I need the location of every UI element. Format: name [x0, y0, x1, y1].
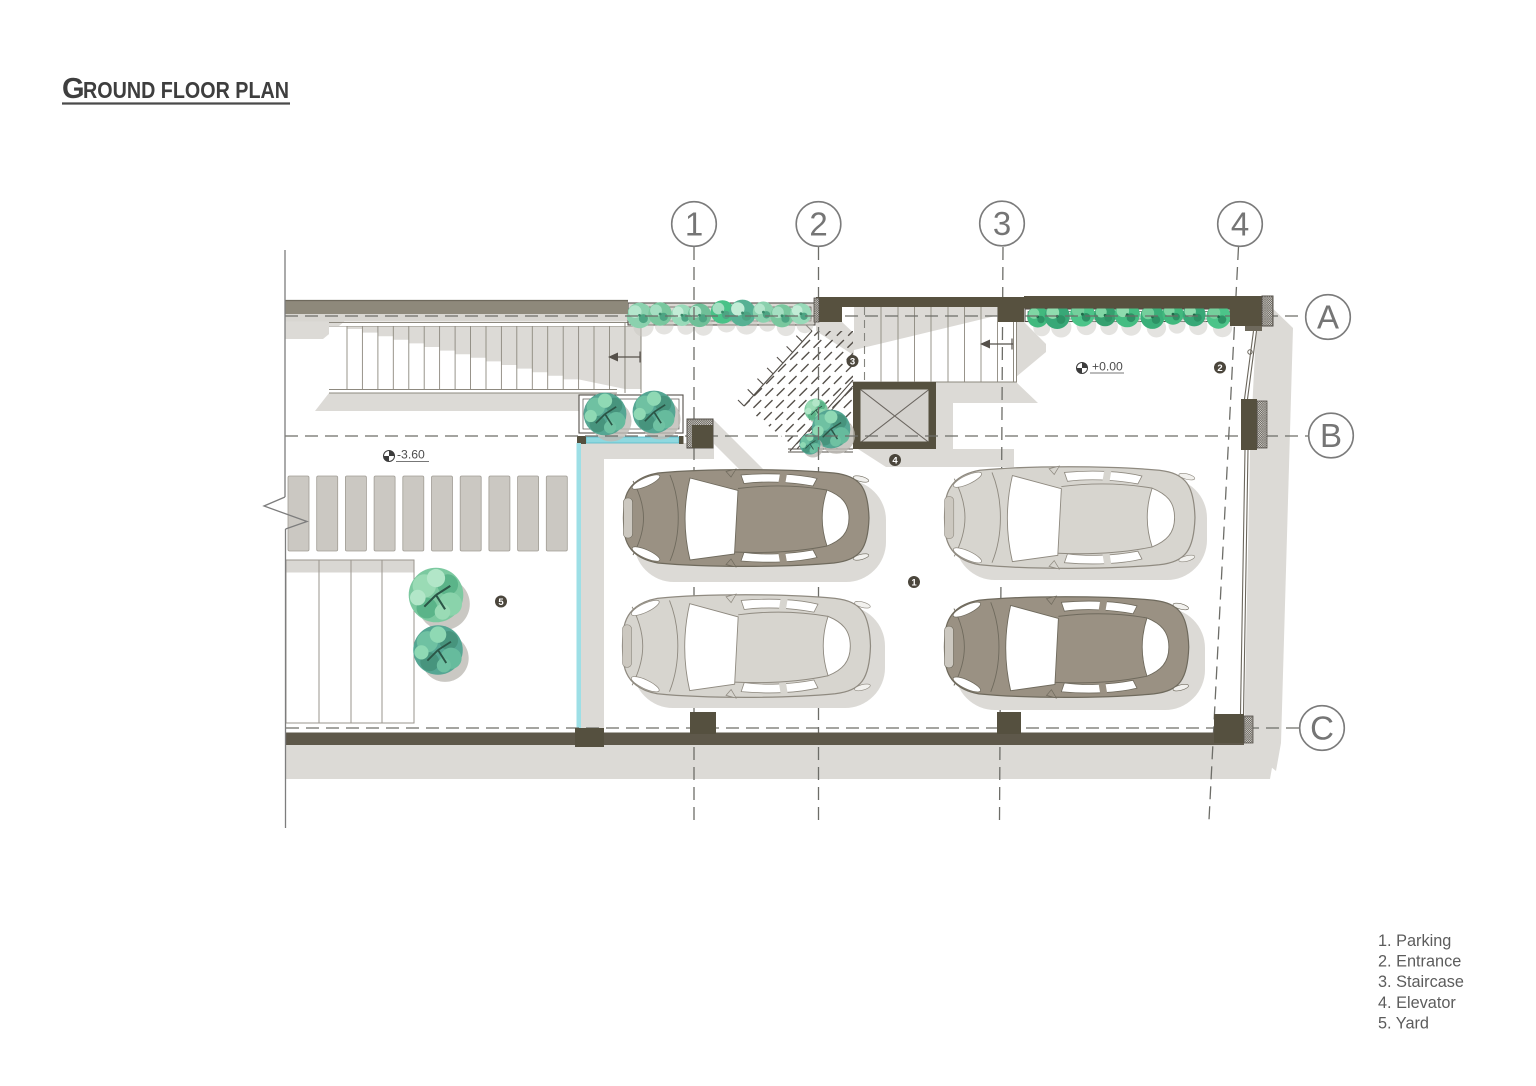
svg-text:2: 2 [1217, 363, 1222, 374]
svg-text:A: A [1317, 299, 1339, 336]
svg-text:1: 1 [911, 577, 917, 588]
svg-text:4. Elevator: 4. Elevator [1378, 994, 1456, 1012]
svg-text:2: 2 [809, 206, 827, 243]
svg-text:B: B [1320, 417, 1342, 454]
svg-text:3. Staircase: 3. Staircase [1378, 973, 1464, 991]
svg-text:4: 4 [1231, 206, 1249, 243]
svg-text:-3.60: -3.60 [397, 448, 425, 462]
svg-text:1. Parking: 1. Parking [1378, 932, 1451, 950]
svg-text:C: C [1310, 710, 1334, 747]
svg-text:ROUND FLOOR PLAN: ROUND FLOOR PLAN [83, 77, 289, 103]
svg-text:3: 3 [993, 205, 1011, 242]
svg-text:G: G [62, 73, 85, 105]
svg-text:3: 3 [850, 356, 855, 367]
svg-text:+0.00: +0.00 [1092, 360, 1123, 374]
svg-text:2. Entrance: 2. Entrance [1378, 953, 1461, 971]
svg-text:1: 1 [685, 206, 703, 243]
svg-text:4: 4 [892, 455, 898, 466]
svg-text:5: 5 [498, 597, 504, 608]
svg-text:5. Yard: 5. Yard [1378, 1014, 1429, 1032]
